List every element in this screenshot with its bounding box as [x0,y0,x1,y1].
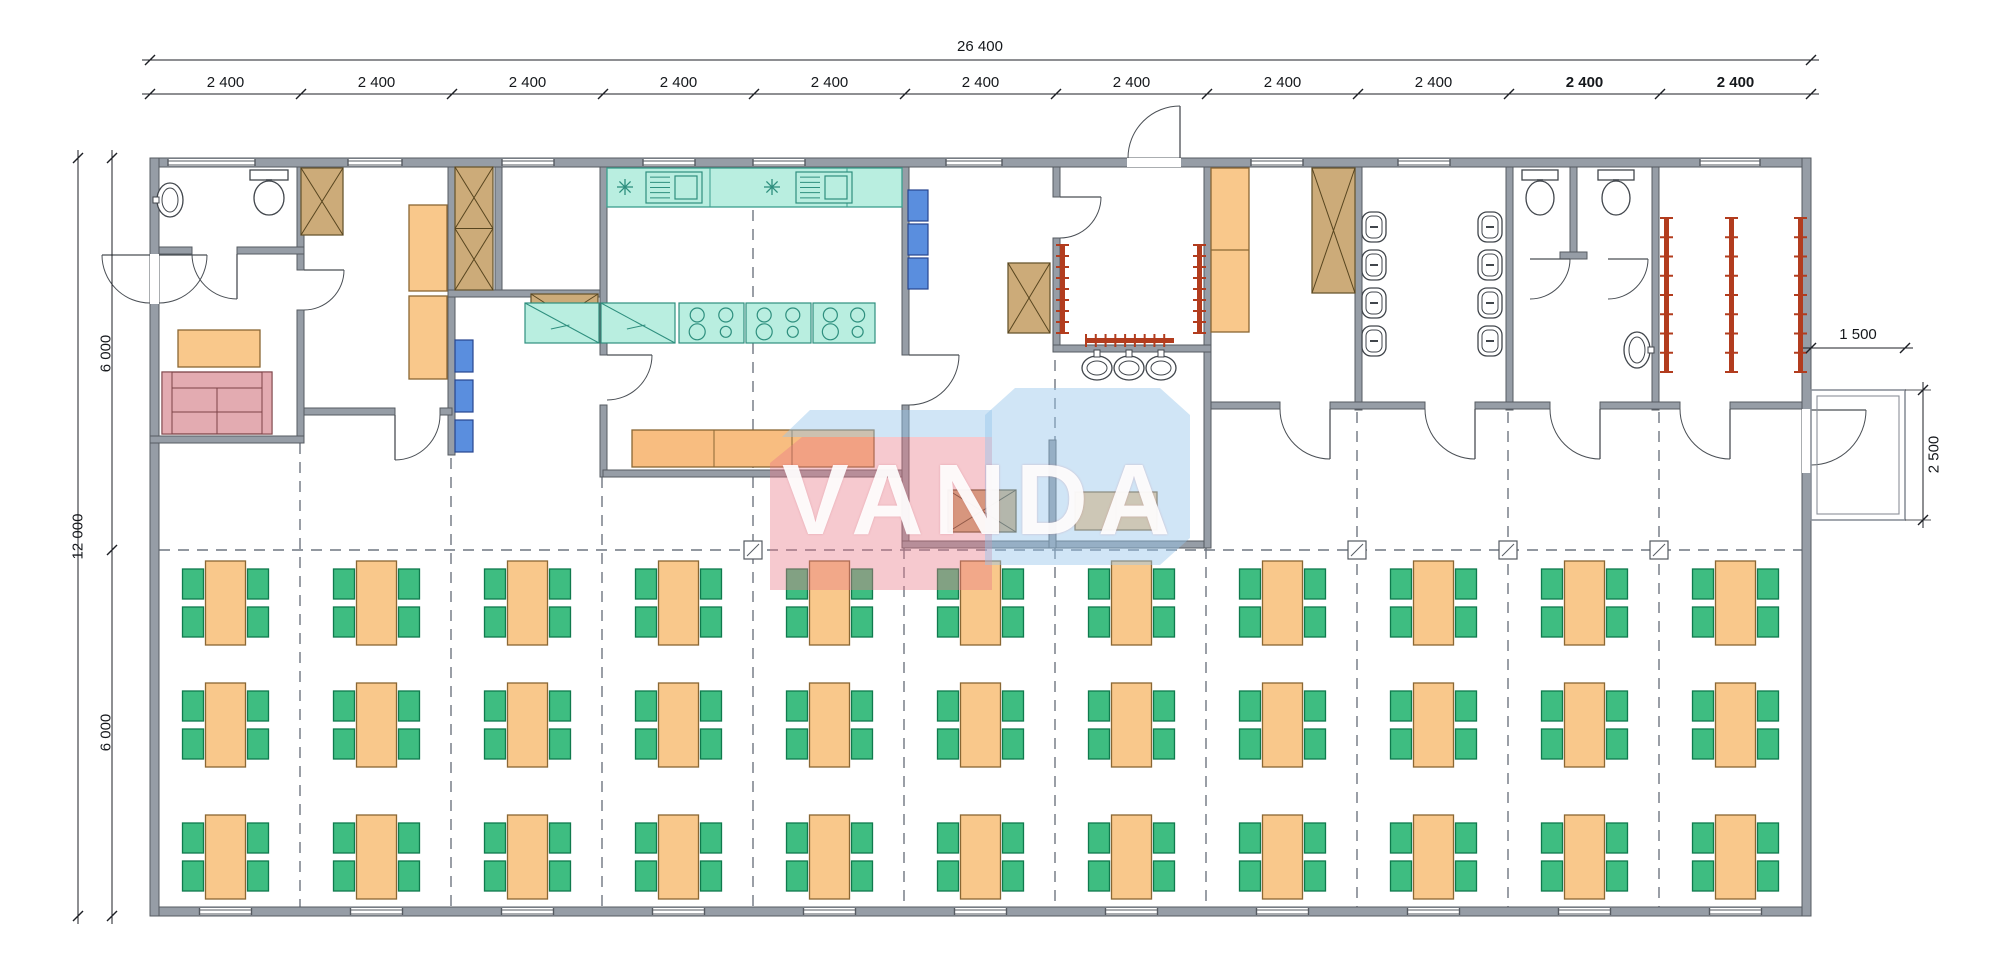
dining-table-icon [659,815,699,899]
chair-icon [1456,607,1477,637]
chair-icon [1003,691,1024,721]
chair-icon [1391,569,1412,599]
wall [1053,238,1060,345]
chair-icon [938,691,959,721]
shelf-unit-icon [455,340,473,372]
chair-icon [399,691,420,721]
chair-icon [1693,691,1714,721]
chair-icon [550,823,571,853]
shelf-unit-icon [908,224,928,255]
dimension-bay-width: 2 400 [1706,74,1766,91]
chair-icon [248,729,269,759]
chair-icon [1758,823,1779,853]
chair-icon [1305,729,1326,759]
door-swing [192,254,237,299]
chair-icon [1693,729,1714,759]
chair-icon [1089,823,1110,853]
chair-icon [1758,569,1779,599]
chair-icon [183,861,204,891]
chair-icon [485,569,506,599]
chair-icon [334,823,355,853]
wall [1560,252,1587,259]
dimension-bay-width: 2 400 [347,74,407,91]
chair-icon [787,729,808,759]
door-swing [1550,409,1600,459]
chair-icon [485,729,506,759]
chair-icon [636,607,657,637]
dining-table-icon [1112,561,1152,645]
chair-icon [1305,607,1326,637]
office-desk-icon [178,330,260,367]
chair-icon [1154,691,1175,721]
chair-icon [701,729,722,759]
chair-icon [636,691,657,721]
dining-table-icon [1565,815,1605,899]
dimension-bay-width: 2 400 [1404,74,1464,91]
chair-icon [852,569,873,599]
chair-icon [701,569,722,599]
chair-icon [485,607,506,637]
chair-icon [1003,861,1024,891]
wall [1475,402,1550,409]
dining-table-icon [508,683,548,767]
shelf-unit-icon [908,258,928,289]
wall [1600,402,1680,409]
dining-table-icon [1565,561,1605,645]
chair-icon [1542,823,1563,853]
chair-icon [1607,569,1628,599]
dining-table-icon [1414,683,1454,767]
dining-table-icon [206,815,246,899]
work-table-icon [409,296,447,379]
chair-icon [636,729,657,759]
chair-icon [1391,607,1412,637]
chair-icon [334,569,355,599]
chair-icon [787,861,808,891]
chair-icon [1456,861,1477,891]
dining-table-icon [206,561,246,645]
chair-icon [550,691,571,721]
chair-icon [1305,569,1326,599]
dining-table-icon [1263,561,1303,645]
dimension-bay-width: 2 400 [951,74,1011,91]
chair-icon [787,691,808,721]
door-swing [1811,410,1866,465]
chair-icon [183,729,204,759]
chair-icon [1542,569,1563,599]
toilet-icon [1598,170,1634,180]
wall [1049,440,1056,548]
chair-icon [938,861,959,891]
wall [1211,402,1280,409]
wall [1802,158,1811,916]
chair-icon [485,861,506,891]
dining-table-icon [659,561,699,645]
chair-icon [636,823,657,853]
wall [237,247,304,254]
door-opening [1802,409,1811,473]
floor-plan-drawing [0,0,2000,975]
chair-icon [1003,823,1024,853]
chair-icon [701,607,722,637]
dimension-bay-width: 2 400 [196,74,256,91]
dimension-bay-width: 2 400 [1102,74,1162,91]
chair-icon [1607,823,1628,853]
chair-icon [852,691,873,721]
chair-icon [248,691,269,721]
chair-icon [399,861,420,891]
dining-table-icon [1263,683,1303,767]
chair-icon [1240,607,1261,637]
shelf-unit-icon [455,380,473,412]
dimension-half-height: 6 000 [98,324,115,384]
wall [297,310,304,443]
chair-icon [1305,823,1326,853]
door-swing [102,255,150,303]
chair-icon [1154,729,1175,759]
chair-icon [852,607,873,637]
wall [304,408,395,415]
chair-icon [787,569,808,599]
wall [1730,402,1802,409]
chair-icon [248,823,269,853]
chair-icon [1456,569,1477,599]
chair-icon [1089,861,1110,891]
chair-icon [1003,569,1024,599]
chair-icon [1003,729,1024,759]
chair-icon [701,823,722,853]
chair-icon [550,729,571,759]
chair-icon [1089,729,1110,759]
chair-icon [1154,607,1175,637]
wall [1053,167,1060,197]
wall [150,436,304,443]
dining-table-icon [1414,815,1454,899]
chair-icon [1391,861,1412,891]
chair-icon [1154,823,1175,853]
wall [1355,167,1362,410]
shelf-unit-icon [455,420,473,452]
chair-icon [399,569,420,599]
door-opening [150,254,159,304]
chair-icon [485,691,506,721]
chair-icon [1154,861,1175,891]
chair-icon [1003,607,1024,637]
wall [603,470,902,477]
dining-table-icon [357,561,397,645]
coat-rack-icon [1086,338,1174,343]
dining-table-icon [961,561,1001,645]
chair-icon [248,607,269,637]
chair-icon [1240,861,1261,891]
dining-table-icon [961,815,1001,899]
chair-icon [334,729,355,759]
dining-table-icon [1716,815,1756,899]
door-swing [1608,259,1648,299]
cooktop-4-burner-icon [746,303,811,343]
chair-icon [399,729,420,759]
chair-icon [183,569,204,599]
wall [1570,167,1577,259]
wall [1652,167,1659,410]
dining-table-icon [357,815,397,899]
chair-icon [1391,691,1412,721]
door-swing [1280,409,1330,459]
chair-icon [399,607,420,637]
door-swing [395,415,440,460]
chair-icon [1607,607,1628,637]
chair-icon [1154,569,1175,599]
chair-icon [1542,861,1563,891]
floor-plan-canvas: 26 400 2 4002 4002 4002 4002 4002 4002 4… [0,0,2000,975]
chair-icon [1391,823,1412,853]
chair-icon [1542,691,1563,721]
dining-table-icon [1414,561,1454,645]
dimension-bay-width: 2 400 [1555,74,1615,91]
chair-icon [1240,729,1261,759]
cooktop-4-burner-icon [679,303,744,343]
serving-counter-icon [632,430,874,467]
chair-icon [852,823,873,853]
chair-icon [183,691,204,721]
chair-icon [248,569,269,599]
chair-icon [1240,569,1261,599]
dining-table-icon [1716,683,1756,767]
dining-table-icon [810,683,850,767]
chair-icon [183,607,204,637]
dining-table-icon [1565,683,1605,767]
chair-icon [1240,691,1261,721]
chair-icon [1391,729,1412,759]
chair-icon [787,823,808,853]
wall [600,405,607,477]
chair-icon [1542,607,1563,637]
chair-icon [701,691,722,721]
chair-icon [852,729,873,759]
work-table-icon [409,205,447,291]
chair-icon [1607,861,1628,891]
dining-table-icon [508,561,548,645]
dimension-bay-width: 2 400 [649,74,709,91]
chair-icon [183,823,204,853]
chair-icon [334,607,355,637]
chair-icon [1089,691,1110,721]
dining-table-icon [1112,683,1152,767]
chair-icon [1758,691,1779,721]
chair-icon [938,607,959,637]
chair-icon [1542,729,1563,759]
wall [440,408,452,415]
chair-icon [1693,861,1714,891]
chair-icon [701,861,722,891]
door-swing [1060,197,1101,238]
toilet-icon [250,170,288,180]
door-swing [1680,409,1730,459]
door-swing [1425,409,1475,459]
dimension-porch-width: 1 500 [1808,326,1908,343]
chair-icon [1607,729,1628,759]
chair-icon [1758,607,1779,637]
chair-icon [334,691,355,721]
chair-icon [636,861,657,891]
entry-porch [1817,396,1899,514]
chair-icon [1693,823,1714,853]
chair-icon [550,861,571,891]
door-swing [1128,106,1180,158]
chair-icon [1693,569,1714,599]
dining-table-icon [810,815,850,899]
chair-icon [550,607,571,637]
dimension-bay-width: 2 400 [498,74,558,91]
wall [1330,402,1425,409]
door-swing [607,355,652,400]
chair-icon [485,823,506,853]
dining-table-icon [810,561,850,645]
chair-icon [1305,861,1326,891]
door-opening [1127,158,1181,167]
dimension-bay-width: 2 400 [1253,74,1313,91]
chair-icon [1089,607,1110,637]
chair-icon [248,861,269,891]
chair-icon [1758,861,1779,891]
chair-icon [938,823,959,853]
chair-icon [938,569,959,599]
door-swing [304,270,344,310]
dimension-overall-width: 26 400 [880,38,1080,55]
chair-icon [1240,823,1261,853]
dining-table-icon [961,683,1001,767]
toilet-icon [1522,170,1558,180]
chair-icon [1305,691,1326,721]
chair-icon [787,607,808,637]
chair-icon [550,569,571,599]
chair-icon [938,729,959,759]
door-swing [1530,259,1570,299]
wall [1506,167,1513,410]
dining-table-icon [659,683,699,767]
wall [159,247,192,254]
wall [1204,167,1211,548]
dimension-bay-width: 2 400 [800,74,860,91]
chair-icon [852,861,873,891]
wall [902,405,909,548]
chair-icon [1456,729,1477,759]
chair-icon [1456,823,1477,853]
dining-table-icon [1263,815,1303,899]
chair-icon [636,569,657,599]
dimension-half-height: 6 000 [98,703,115,763]
chair-icon [399,823,420,853]
chair-icon [1089,569,1110,599]
dining-table-icon [1716,561,1756,645]
chair-icon [1693,607,1714,637]
dining-table-icon [508,815,548,899]
dining-table-icon [1112,815,1152,899]
chair-icon [1607,691,1628,721]
chair-icon [1758,729,1779,759]
chair-icon [1456,691,1477,721]
door-swing [909,355,959,405]
dimension-porch-depth: 2 500 [1926,425,1943,485]
dimension-overall-height: 12 000 [70,507,87,567]
dining-table-icon [357,683,397,767]
dining-table-icon [206,683,246,767]
wall [495,167,502,297]
chair-icon [334,861,355,891]
cooktop-4-burner-icon [813,303,875,343]
shelf-unit-icon [908,190,928,221]
